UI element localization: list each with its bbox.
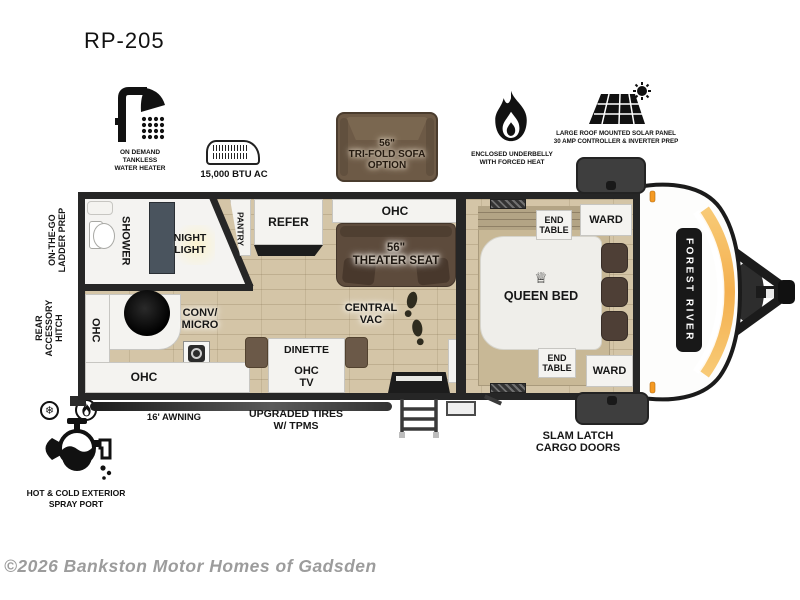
shower-label: SHOWER (119, 205, 131, 277)
queen-bed: ♕ QUEEN BED (480, 236, 602, 350)
bedroom-window-top (490, 199, 526, 209)
ohc-kitchen-label: OHC (114, 371, 174, 384)
watermark: ©2026 Bankston Motor Homes of Gadsden (4, 556, 377, 577)
dinette-seat-right (345, 337, 368, 368)
end-table-top-label: END TABLE (537, 215, 571, 235)
water-heater-caption: ON DEMAND TANKLESS WATER HEATER (96, 149, 184, 173)
queen-bed-label: QUEEN BED (481, 289, 601, 303)
end-table-top: END TABLE (536, 210, 572, 240)
ac-caption: 15,000 BTU AC (188, 169, 280, 181)
crown-icon: ♕ (481, 271, 601, 288)
toilet-icon (93, 223, 115, 249)
entry-steps-icon (394, 399, 444, 439)
entry-threshold (396, 376, 442, 381)
ac-vent-top (213, 145, 249, 151)
utility-box (446, 401, 476, 416)
solar-caption: LARGE ROOF MOUNTED SOLAR PANEL 30 AMP CO… (550, 130, 682, 146)
refer-label: REFER (255, 216, 322, 229)
central-vac-label: CENTRAL VAC (340, 302, 402, 327)
bedroom-window-bottom (490, 383, 526, 393)
night-light-label: NIGHT LIGHT (167, 233, 213, 257)
cooktop-burner-ring (191, 348, 202, 359)
bed-pillow-2 (601, 277, 628, 307)
theater-seat-label: 56" THEATER SEAT (337, 242, 455, 268)
end-table-bottom: END TABLE (538, 348, 576, 378)
theater-seat: 56" THEATER SEAT (336, 223, 456, 287)
cargo-knob-bottom (607, 396, 617, 405)
ladder-prep-label: ON-THE-GO LADDER PREP (47, 200, 67, 280)
rear-hitch-label: REAR ACCESSORY HITCH (34, 293, 64, 363)
kitchen-sink (124, 290, 170, 336)
bath-bottom-wall (85, 284, 253, 291)
marker-light-top (650, 191, 655, 202)
theater-backrest (340, 226, 452, 237)
ohc-rear-label: OHC (89, 307, 101, 353)
flame-icon (490, 88, 532, 146)
end-table-bottom-label: END TABLE (539, 353, 575, 373)
brand-label: FOREST RIVER (683, 238, 694, 342)
page-title: RP-205 (84, 28, 165, 54)
sofa-back (346, 117, 428, 140)
floorplan-page: RP-205 ON DEMAND TANKLESS WATER HEATER 1… (0, 0, 800, 600)
dinette-seat-left (245, 337, 268, 368)
trailer-front-cap: FOREST RIVER (628, 178, 796, 406)
ac-vent-bottom (213, 153, 249, 159)
slam-latch-label: SLAM LATCH CARGO DOORS (518, 430, 638, 455)
ohc-tv-label: OHC TV (269, 365, 344, 390)
cargo-door-top (576, 157, 646, 194)
ohc-galley-cabinet: OHC (332, 199, 458, 223)
spray-port-caption: HOT & COLD EXTERIOR SPRAY PORT (14, 488, 138, 509)
snowflake-glyph: ❄ (45, 404, 54, 417)
floorplan-shell: SHOWER NIGHT LIGHT PANTRY REFER OHC 56" … (78, 192, 640, 400)
footprints-icon (403, 291, 427, 347)
ward-top-label: WARD (581, 214, 631, 226)
underbelly-caption: ENCLOSED UNDERBELLY WITH FORCED HEAT (460, 151, 564, 167)
tires-label: UPGRADED TIRES W/ TPMS (246, 409, 346, 433)
bed-pillow-1 (601, 243, 628, 273)
bath-vanity (87, 201, 113, 215)
shower-icon (113, 86, 167, 144)
kitchen-lower-counter: OHC (85, 362, 250, 393)
cargo-knob-top (606, 181, 616, 190)
ward-bottom-label: WARD (587, 365, 632, 377)
refrigerator: REFER (254, 199, 323, 245)
wardrobe-bottom: WARD (586, 355, 633, 387)
sofa-option-label: 56" TRI-FOLD SOFA OPTION (338, 138, 436, 172)
cargo-door-bottom (575, 392, 649, 425)
refer-counter (254, 245, 323, 256)
sofa-option-icon: 56" TRI-FOLD SOFA OPTION (336, 112, 438, 182)
solar-panel-icon (585, 82, 651, 128)
marker-light-bottom (650, 382, 655, 393)
awning-label: 16' AWNING (136, 413, 212, 424)
dinette-label: DINETTE (269, 345, 344, 357)
bed-pillow-3 (601, 311, 628, 341)
dinette-table: DINETTE OHC TV (268, 338, 345, 393)
spray-port-faucet-icon (40, 418, 114, 482)
wardrobe-top: WARD (580, 204, 632, 236)
conv-micro-label: CONV/ MICRO (167, 307, 233, 332)
bedroom-wall (456, 199, 466, 393)
awning-bar (90, 402, 392, 411)
hitch-coupler (778, 280, 795, 304)
entry-door-landing (388, 372, 450, 393)
ac-unit-icon (206, 140, 260, 165)
ohc-galley-label: OHC (333, 205, 457, 218)
